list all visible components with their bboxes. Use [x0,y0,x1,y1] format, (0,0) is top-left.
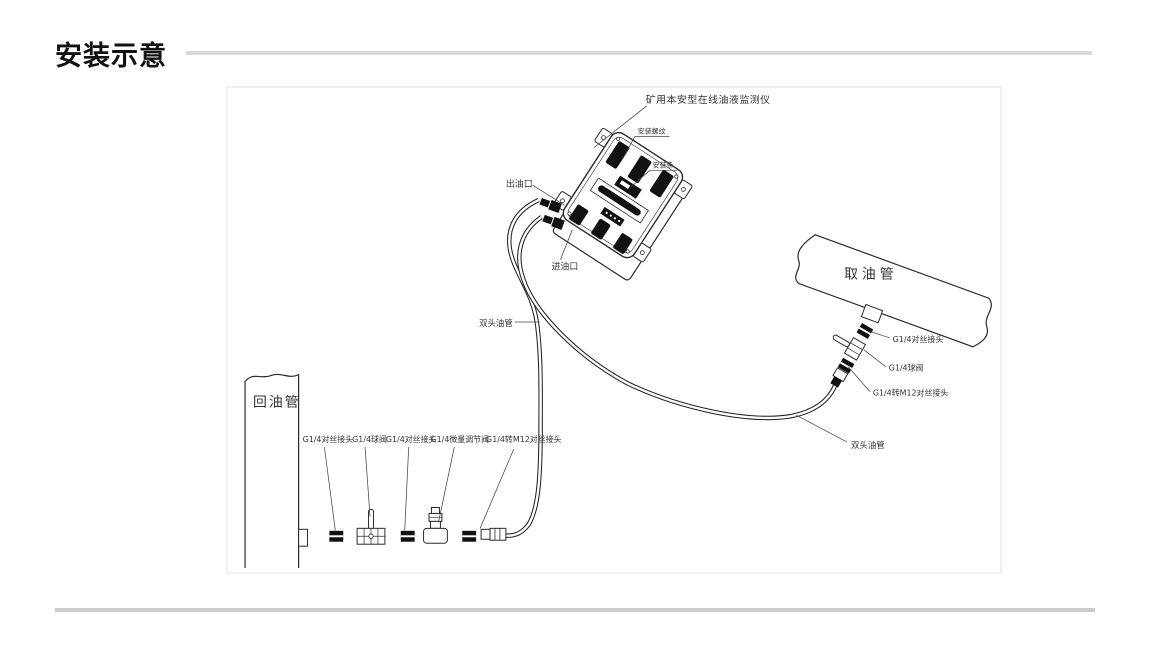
fitting-nipple-1 [329,531,343,542]
bottom-chain-label-1: G1/4对丝接头 [303,434,354,444]
bottom-chain-label-3: G1/4对丝接头 [386,434,437,444]
right-fitting-chain [829,323,873,388]
micro-adjust-valve [424,508,448,544]
diagram-canvas: 回油管 取油管 [228,88,996,568]
outlet-label: 出油口 [506,178,533,190]
bottom-chain-label-2: G1/4球阀 [352,434,387,444]
page: 安装示意 回油管 取油管 [0,0,1150,655]
bottom-chain-label-4: G1/4微量调节阀 [431,434,490,444]
bottom-rule [55,608,1095,612]
device-name-label: 矿用本安型在线油液监测仪 [646,93,771,106]
fitting-nipple-2 [401,531,415,542]
hose-right-label: 双头油管 [851,440,885,450]
intake-tap-port [861,305,882,323]
mount-bar-label: 安装条 [653,160,674,169]
title-rule [186,51,1092,55]
right-chain-label-3: G1/4转M12对丝接头 [873,387,948,397]
page-title: 安装示意 [55,34,167,73]
hose-left-label: 双头油管 [479,318,513,328]
mount-thread-label: 安装螺纹 [638,127,666,136]
return-pipe: 回油管 [245,374,307,568]
return-pipe-port [299,529,308,546]
bottom-chain-label-5: G1/4转M12对丝接头 [486,434,561,444]
inlet-label: 进油口 [552,260,579,272]
intake-pipe: 取油管 [796,235,992,347]
monitor-device [540,123,696,283]
fitting-nipple-right [857,323,874,339]
hose-right-tube [519,217,835,418]
valve-handle [832,334,850,347]
fitting-adapter-bottom [462,531,476,542]
installation-diagram: 回油管 取油管 [226,86,1002,574]
return-pipe-label: 回油管 [253,394,301,410]
valve-handle [369,509,374,529]
ball-valve-bottom [357,509,385,544]
bottom-fitting-chain [329,508,506,545]
hose-end-bottom [481,528,506,540]
intake-pipe-label: 取油管 [844,266,898,282]
right-chain-label-2: G1/4球阀 [889,363,924,373]
right-chain-label-1: G1/4对丝接头 [893,334,944,344]
hose-left-tube [504,200,541,536]
